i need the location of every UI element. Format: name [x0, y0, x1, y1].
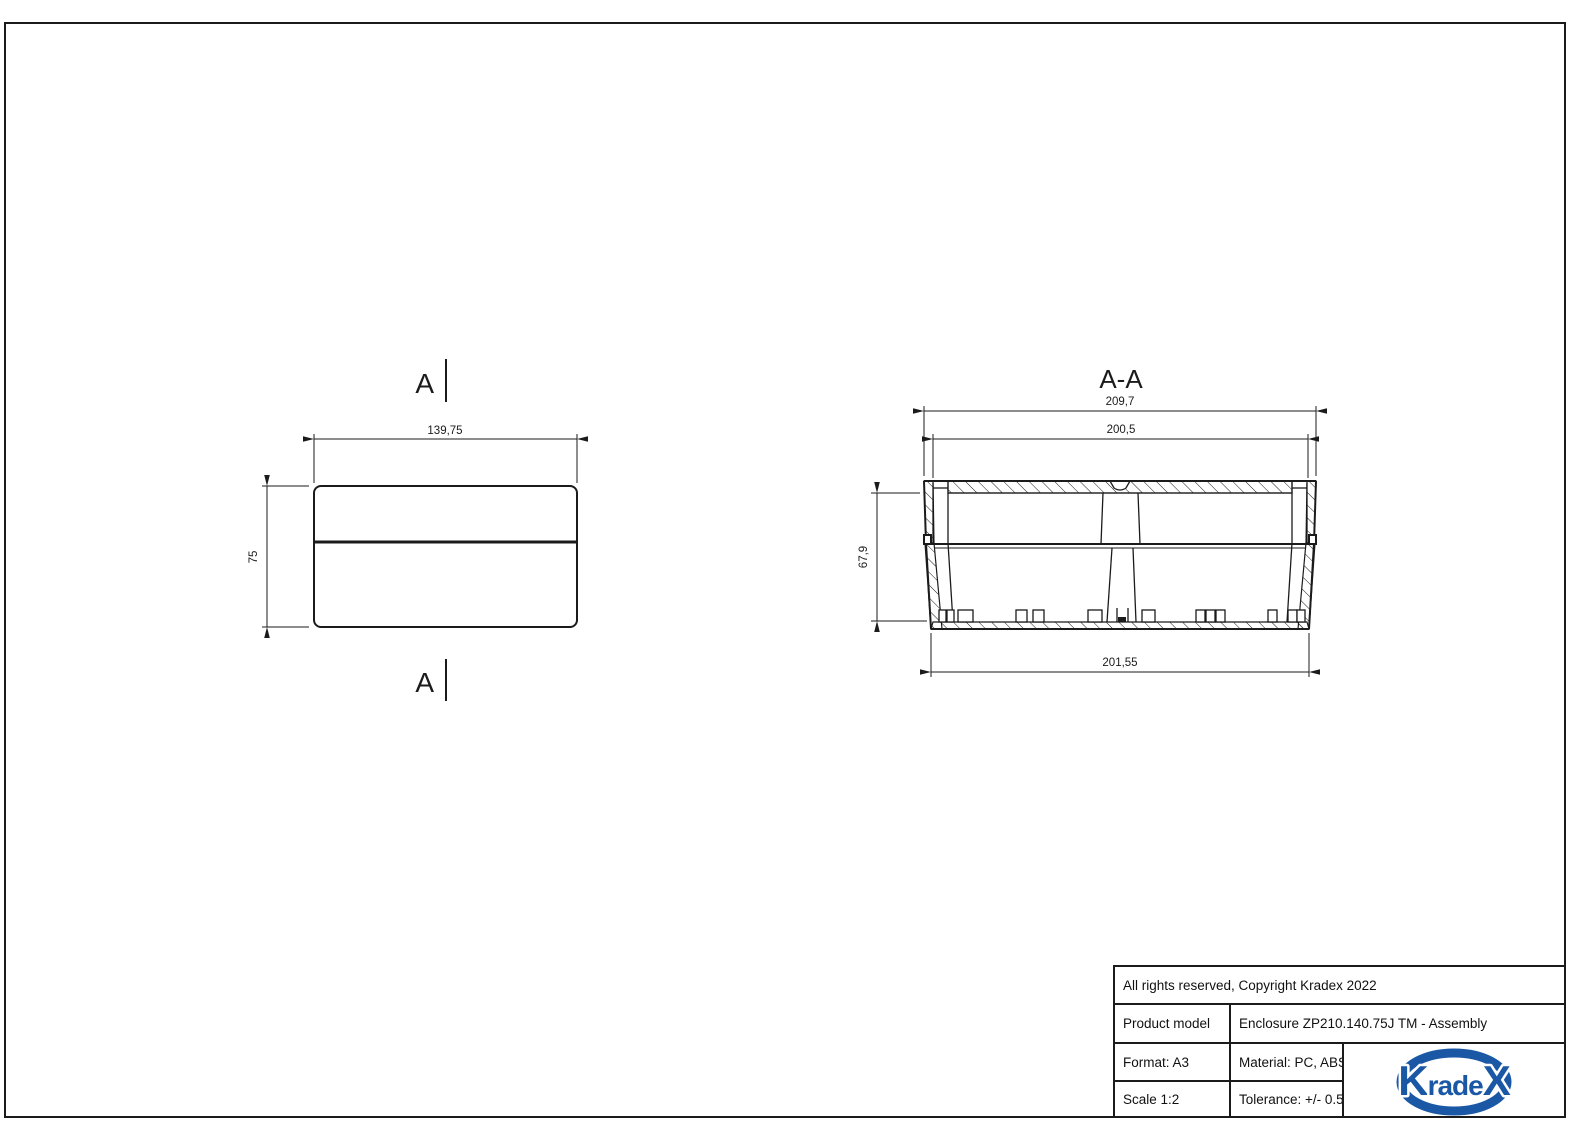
dimension-lid-inner-width: 200,5	[933, 424, 1308, 478]
section-view-title: A-A	[1099, 364, 1143, 394]
sheet-frame	[5, 23, 1565, 1117]
dimension-width: 139,75	[314, 425, 577, 483]
section-label-top: A	[415, 368, 434, 399]
product-model-value: Enclosure ZP210.140.75J TM - Assembly	[1229, 1003, 1564, 1042]
title-block: All rights reserved, Copyright Kradex 20…	[1113, 965, 1566, 1118]
product-model-label: Product model	[1115, 1003, 1229, 1042]
drawing-sheet: A A 139,75 75 A-A	[0, 0, 1588, 1123]
dim-text-base-width: 201,55	[1102, 657, 1137, 669]
tolerance-cell: Tolerance: +/- 0.5	[1229, 1080, 1342, 1116]
copyright-cell: All rights reserved, Copyright Kradex 20…	[1115, 967, 1564, 1003]
enclosure-outline	[314, 486, 577, 627]
dimension-height: 75	[248, 486, 309, 627]
dimension-overall-width: 209,7	[924, 396, 1316, 476]
material-cell: Material: PC, ABS	[1229, 1042, 1342, 1080]
section-view: A-A	[858, 364, 1316, 677]
technical-drawing-canvas: A A 139,75 75 A-A	[0, 0, 1588, 1123]
scale-cell: Scale 1:2	[1115, 1080, 1229, 1116]
section-label-bottom: A	[415, 667, 434, 698]
section-cut-mark-top: A	[415, 359, 446, 402]
dimension-inner-height: 67,9	[858, 493, 927, 621]
dim-text-height: 75	[248, 551, 260, 564]
kradex-logo-cell: KradeX	[1342, 1042, 1564, 1116]
section-hatching	[924, 481, 1316, 629]
kradex-logo: KradeX	[1369, 1044, 1539, 1116]
dim-text-width: 139,75	[427, 425, 462, 437]
dim-text-lid-inner-width: 200,5	[1107, 424, 1136, 436]
dim-text-inner-height: 67,9	[858, 546, 870, 568]
section-cut-mark-bottom: A	[415, 659, 446, 701]
dim-text-overall-width: 209,7	[1106, 396, 1135, 408]
side-view: A A 139,75 75	[248, 359, 577, 701]
dimension-base-width: 201,55	[931, 633, 1309, 677]
section-interior	[924, 481, 1316, 622]
kradex-logo-text: KradeX	[1398, 1057, 1511, 1104]
format-cell: Format: A3	[1115, 1042, 1229, 1080]
section-outline	[924, 481, 1316, 629]
